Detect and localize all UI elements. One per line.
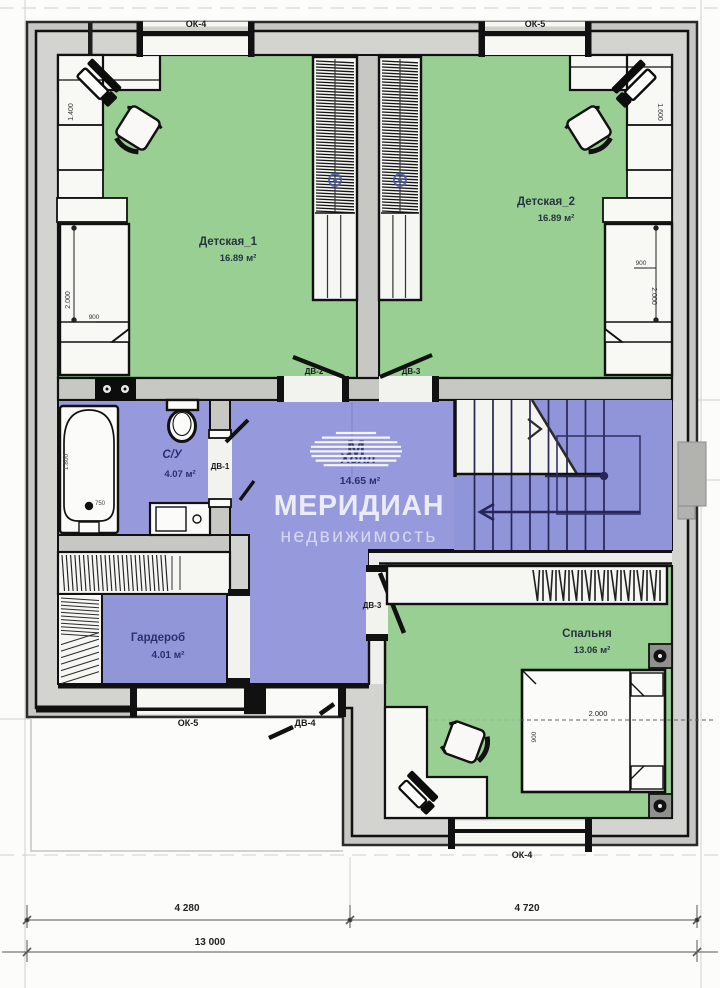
svg-text:2.000: 2.000 [65, 291, 72, 309]
svg-text:ДВ-1: ДВ-1 [211, 462, 230, 471]
svg-text:ОК-4: ОК-4 [512, 850, 533, 860]
svg-text:Спальня: Спальня [562, 628, 612, 640]
svg-text:900: 900 [636, 260, 647, 267]
svg-text:ДВ-2: ДВ-2 [305, 367, 324, 376]
svg-text:16.89 м²: 16.89 м² [538, 213, 575, 224]
svg-text:4.01 м²: 4.01 м² [152, 650, 186, 661]
svg-text:Гардероб: Гардероб [131, 632, 185, 644]
svg-text:М: М [347, 436, 365, 461]
svg-text:ОК-4: ОК-4 [186, 19, 207, 29]
svg-text:4 280: 4 280 [174, 903, 199, 914]
svg-text:900: 900 [89, 314, 100, 321]
svg-text:недвижимость: недвижимость [280, 525, 437, 547]
svg-text:13 000: 13 000 [195, 937, 226, 948]
svg-text:750: 750 [95, 501, 106, 507]
svg-text:ДВ-4: ДВ-4 [295, 718, 316, 728]
svg-text:2.000: 2.000 [589, 709, 608, 718]
svg-text:ОК-5: ОК-5 [178, 718, 199, 728]
svg-text:14.65 м²: 14.65 м² [340, 475, 381, 487]
svg-text:4.07 м²: 4.07 м² [164, 469, 195, 480]
svg-text:ДВ-3: ДВ-3 [363, 601, 382, 610]
svg-text:ОК-5: ОК-5 [525, 19, 546, 29]
svg-text:МЕРИДИАН: МЕРИДИАН [274, 490, 445, 522]
svg-text:4 720: 4 720 [514, 903, 539, 914]
svg-text:ДВ-3: ДВ-3 [402, 367, 421, 376]
svg-text:1.600: 1.600 [656, 103, 663, 121]
svg-text:С/У: С/У [162, 449, 183, 461]
svg-text:16.89 м²: 16.89 м² [220, 253, 257, 264]
svg-text:Детская_2: Детская_2 [517, 196, 575, 208]
svg-text:1.800: 1.800 [63, 453, 70, 470]
svg-text:13.06 м²: 13.06 м² [574, 645, 611, 656]
svg-text:1.400: 1.400 [68, 103, 75, 121]
svg-text:Детская_1: Детская_1 [199, 236, 258, 248]
svg-text:900: 900 [531, 731, 538, 742]
svg-text:2.000: 2.000 [650, 287, 657, 305]
